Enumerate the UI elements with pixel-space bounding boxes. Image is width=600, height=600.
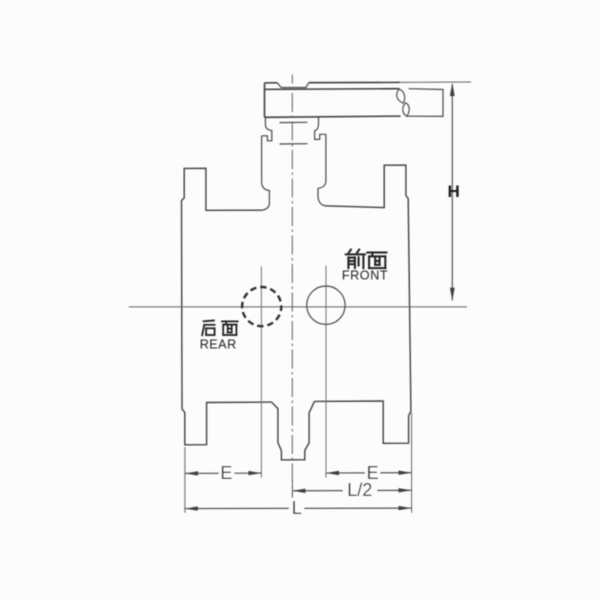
svg-text:REAR: REAR	[200, 338, 237, 352]
svg-text:FRONT: FRONT	[342, 268, 388, 282]
svg-text:L/2: L/2	[347, 480, 372, 500]
svg-text:L: L	[292, 498, 302, 518]
svg-text:E: E	[220, 463, 232, 483]
svg-text:H: H	[447, 182, 459, 201]
